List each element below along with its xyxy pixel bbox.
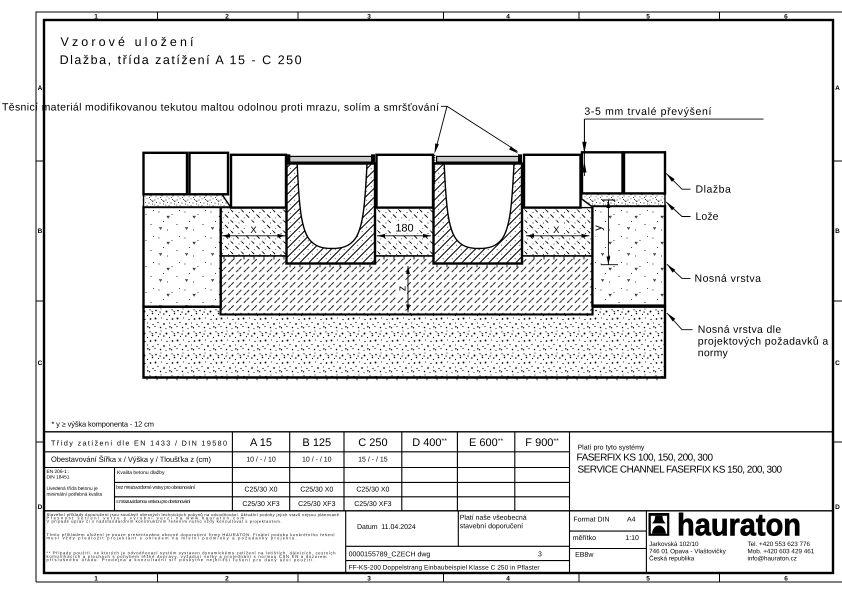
svg-text:1: 1 xyxy=(94,13,98,20)
svg-text:C25/30 X0: C25/30 X0 xyxy=(300,486,333,493)
svg-text:C 250: C 250 xyxy=(358,437,387,449)
svg-text:Platí naše všeobecná: Platí naše všeobecná xyxy=(460,515,527,522)
svg-text:C25/30 X0: C25/30 X0 xyxy=(356,486,389,493)
svg-text:C: C xyxy=(38,360,43,367)
svg-text:Uvedená třída betonu je: Uvedená třída betonu je xyxy=(46,486,98,492)
svg-text:1:10: 1:10 xyxy=(625,535,639,542)
svg-text:Nosná vrstva: Nosná vrstva xyxy=(694,273,761,285)
svg-text:s mrazuvzdornou vrstvou pro ob: s mrazuvzdornou vrstvou pro obetonování xyxy=(116,499,191,505)
svg-text:A: A xyxy=(38,85,43,92)
svg-text:Vzorové uložení: Vzorové uložení xyxy=(60,35,194,49)
svg-text:musí vždy předložit projektant: musí vždy předložit projektant s ohledem… xyxy=(46,535,296,540)
svg-text:* y ≥ výška komponenta - 12 c: * y ≥ výška komponenta - 12 cm xyxy=(51,420,154,429)
svg-text:5: 5 xyxy=(646,13,650,20)
svg-text:6: 6 xyxy=(784,575,788,582)
svg-text:0000155789_CZECH dwg: 0000155789_CZECH dwg xyxy=(349,551,431,558)
svg-text:y: y xyxy=(593,225,605,231)
svg-text:z: z xyxy=(397,286,409,292)
svg-text:Tel. +420 553 623 776: Tel. +420 553 623 776 xyxy=(747,541,810,548)
svg-text:2: 2 xyxy=(225,13,229,20)
svg-text:Česká republika: Česká republika xyxy=(649,553,695,562)
svg-text:Mob. +420 603 429 461: Mob. +420 603 429 461 xyxy=(747,548,814,555)
svg-text:info@hauraton.cz: info@hauraton.cz xyxy=(747,555,796,562)
svg-text:příslušného úřadu. Prodejna a: příslušného úřadu. Prodejna a konzultačn… xyxy=(46,557,314,562)
svg-text:měřítko: měřítko xyxy=(573,535,596,542)
svg-text:Datum: Datum xyxy=(357,524,378,531)
svg-text:D: D xyxy=(835,504,840,511)
svg-text:Lože: Lože xyxy=(695,211,718,223)
svg-text:bez mrazuvzdorné vrstvy pro ob: bez mrazuvzdorné vrstvy pro obetonování xyxy=(116,485,196,491)
svg-text:3: 3 xyxy=(538,551,542,558)
svg-text:11.04.2024: 11.04.2024 xyxy=(381,524,416,531)
svg-text:B: B xyxy=(835,228,840,235)
svg-text:746 01 Opava - Vlaštovičky: 746 01 Opava - Vlaštovičky xyxy=(649,548,727,555)
svg-text:B 125: B 125 xyxy=(302,437,331,449)
svg-text:180: 180 xyxy=(395,222,413,234)
svg-text:B: B xyxy=(38,228,43,235)
svg-text:Nosná vrstva dle: Nosná vrstva dle xyxy=(698,324,782,336)
svg-text:5: 5 xyxy=(646,575,650,582)
svg-text:3-5 mm trvalé převýšení: 3-5 mm trvalé převýšení xyxy=(584,106,711,118)
svg-text:Obestavování Šířka x / Výška: Obestavování Šířka x / Výška y / Tloušťk… xyxy=(51,455,212,464)
svg-text:Dlažba: Dlažba xyxy=(695,184,730,196)
svg-text:X: X xyxy=(553,225,560,236)
svg-text:A 15: A 15 xyxy=(250,437,272,449)
svg-text:2: 2 xyxy=(225,575,229,582)
svg-text:3: 3 xyxy=(367,13,371,20)
svg-text:3: 3 xyxy=(367,575,371,582)
svg-text:minimální potřebná kvalita: minimální potřebná kvalita xyxy=(46,492,102,498)
svg-text:X: X xyxy=(250,225,257,236)
svg-text:C25/30 XF3: C25/30 XF3 xyxy=(242,501,279,508)
svg-text:hauraton: hauraton xyxy=(677,507,801,542)
svg-text:V případě úprav či s nadstanda: V případě úprav či s nadstandardním kons… xyxy=(46,519,281,524)
svg-text:10 / - / 10: 10 / - / 10 xyxy=(246,456,276,463)
svg-text:stavební doporučení: stavební doporučení xyxy=(460,523,523,530)
svg-text:C: C xyxy=(835,360,840,367)
svg-text:A4: A4 xyxy=(627,517,636,524)
svg-text:FF-KS-200 Doppelstrang Einbaub: FF-KS-200 Doppelstrang Einbaubeispiel Kl… xyxy=(349,565,541,572)
svg-text:C25/30 XF3: C25/30 XF3 xyxy=(354,501,391,508)
svg-text:EB8w: EB8w xyxy=(575,552,594,559)
svg-text:4: 4 xyxy=(506,13,510,20)
svg-text:D: D xyxy=(38,504,43,511)
svg-text:Kvalita betonu dlažby: Kvalita betonu dlažby xyxy=(117,470,165,476)
svg-text:A: A xyxy=(835,85,840,92)
svg-text:4: 4 xyxy=(506,575,510,582)
svg-text:Jarkovská 102/10: Jarkovská 102/10 xyxy=(649,541,699,548)
svg-text:Format DIN: Format DIN xyxy=(573,517,609,524)
svg-text:1: 1 xyxy=(94,575,98,582)
svg-text:C25/30 XF3: C25/30 XF3 xyxy=(298,501,335,508)
svg-text:10 / - / 10: 10 / - / 10 xyxy=(302,456,332,463)
svg-text:EN 206-1 :: EN 206-1 : xyxy=(46,469,69,475)
svg-text:projektových požadavků a: projektových požadavků a xyxy=(698,336,829,348)
svg-text:SERVICE CHANNEL FASERFIX KS 15: SERVICE CHANNEL FASERFIX KS 150, 200, 30… xyxy=(577,465,782,476)
svg-text:15 / - / 15: 15 / - / 15 xyxy=(358,456,388,463)
svg-text:Dlažba, třída zatížení A 15 -: Dlažba, třída zatížení A 15 - C 250 xyxy=(60,53,302,67)
svg-text:FASERFIX KS 100, 150, 200, 300: FASERFIX KS 100, 150, 200, 300 xyxy=(576,453,713,464)
svg-text:normy: normy xyxy=(698,347,729,359)
svg-text:Platí pro tyto systémy: Platí pro tyto systémy xyxy=(577,445,644,452)
svg-text:6: 6 xyxy=(784,13,788,20)
svg-text:C25/30 X0: C25/30 X0 xyxy=(244,486,277,493)
svg-text:DIN 18451: DIN 18451 xyxy=(46,475,69,481)
svg-text:Těsnicí materiál modifikovanou: Těsnicí materiál modifikovanou tekutou m… xyxy=(2,102,439,114)
